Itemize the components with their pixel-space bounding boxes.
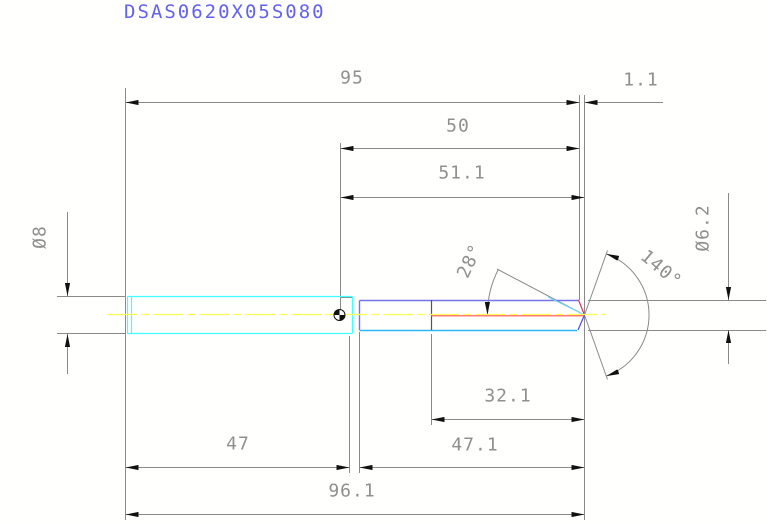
dim-label-47: 47 xyxy=(226,434,250,455)
dim-label-51-1: 51.1 xyxy=(438,163,485,184)
angle-140-upper-leg xyxy=(585,251,608,316)
datum-point-symbol xyxy=(334,310,345,321)
angle-28-arc xyxy=(487,270,498,316)
point-bottom-edge xyxy=(578,315,585,330)
dim-label-32-1: 32.1 xyxy=(484,386,531,407)
drawing-sheet: DSAS0620X05S080 95 1.1 50 51.1 Ø8 Ø6.2 2… xyxy=(0,0,767,523)
dim-label-96-1: 96.1 xyxy=(328,481,375,502)
drawing-title: DSAS0620X05S080 xyxy=(124,1,326,23)
dim-label-95: 95 xyxy=(340,68,364,89)
dim-label-47-1: 47.1 xyxy=(451,435,498,456)
dimension-lines xyxy=(68,103,729,515)
dim-label-dia62: Ø6.2 xyxy=(693,204,714,251)
dim-label-50: 50 xyxy=(446,116,470,137)
dim-label-dia8: Ø8 xyxy=(30,225,51,249)
dim-label-1-1: 1.1 xyxy=(623,70,659,91)
tool-point xyxy=(548,297,585,330)
extension-lines xyxy=(57,88,766,520)
angle-140-lower-leg xyxy=(585,315,608,380)
angle-140-arc xyxy=(606,254,649,376)
